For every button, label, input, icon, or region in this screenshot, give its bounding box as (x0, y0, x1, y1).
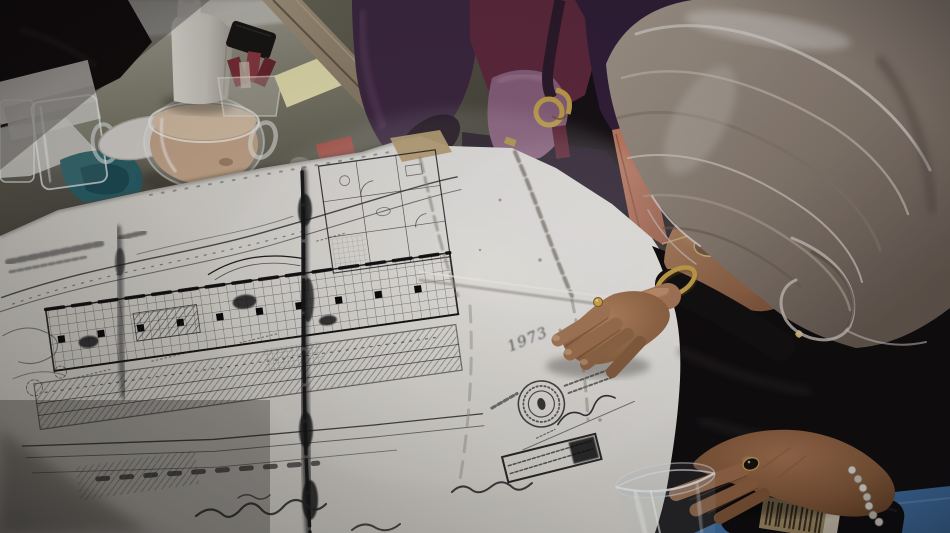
vignette (0, 0, 950, 533)
photo-stage: 1973 (0, 0, 950, 533)
